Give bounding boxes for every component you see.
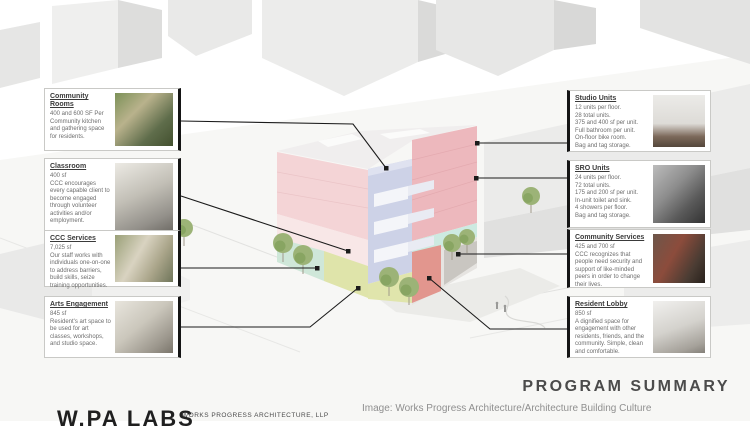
classroom-interior-photo <box>115 163 173 231</box>
callout-community-services: Community Services 425 and 700 sfCCC rec… <box>567 229 711 288</box>
services-office-photo <box>115 235 173 282</box>
community-room-interior-photo <box>115 93 173 146</box>
callout-arts-engagement: Arts Engagement 845 sfResident's art spa… <box>44 296 181 358</box>
callout-title: Classroom <box>50 163 111 171</box>
callout-body: 400 sfCCC encourages every capable clien… <box>50 173 111 226</box>
callout-title: SRO Units <box>575 165 649 173</box>
callout-body: 850 sfA dignified space for engagement w… <box>575 311 649 356</box>
callout-community-rooms: Community Rooms 400 and 600 SF PerCommun… <box>44 88 181 151</box>
callout-title: Resident Lobby <box>575 301 649 309</box>
callout-title: Community Rooms <box>50 93 111 109</box>
sro-unit-resident-photo <box>653 165 705 223</box>
callout-sro-units: SRO Units 24 units per floor.72 total un… <box>567 160 711 228</box>
studio-unit-interior-photo <box>653 95 705 147</box>
callout-body: 7,025 sfOur staff works with individuals… <box>50 245 111 290</box>
callout-title: CCC Services <box>50 235 111 243</box>
callout-title: Studio Units <box>575 95 649 103</box>
callout-title: Community Services <box>575 234 649 242</box>
callout-body: 24 units per floor.72 total units.175 an… <box>575 175 649 220</box>
callout-body: 12 units per floor.28 total units.375 an… <box>575 105 649 150</box>
callout-body: 425 and 700 sfCCC recognizes that people… <box>575 244 649 289</box>
community-group-photo <box>653 234 705 283</box>
page-title: PROGRAM SUMMARY <box>522 378 730 396</box>
callout-classroom: Classroom 400 sfCCC encourages every cap… <box>44 158 181 236</box>
callout-body: 400 and 600 SF PerCommunity kitchen and … <box>50 111 111 141</box>
callout-resident-lobby: Resident Lobby 850 sfA dignified space f… <box>567 296 711 358</box>
callout-studio-units: Studio Units 12 units per floor.28 total… <box>567 90 711 152</box>
lobby-interior-photo <box>653 301 705 353</box>
wpa-logo-subtext: WORKS PROGRESS ARCHITECTURE, LLP <box>182 412 329 419</box>
art-studio-photo <box>115 301 173 353</box>
callout-title: Arts Engagement <box>50 301 111 309</box>
callout-body: 845 sfResident's art space to be used fo… <box>50 311 111 349</box>
image-credit: Image: Works Progress Architecture/Archi… <box>362 403 651 414</box>
callout-ccc-services: CCC Services 7,025 sfOur staff works wit… <box>44 230 181 287</box>
wpa-logo: W.PA LABS <box>57 406 195 432</box>
